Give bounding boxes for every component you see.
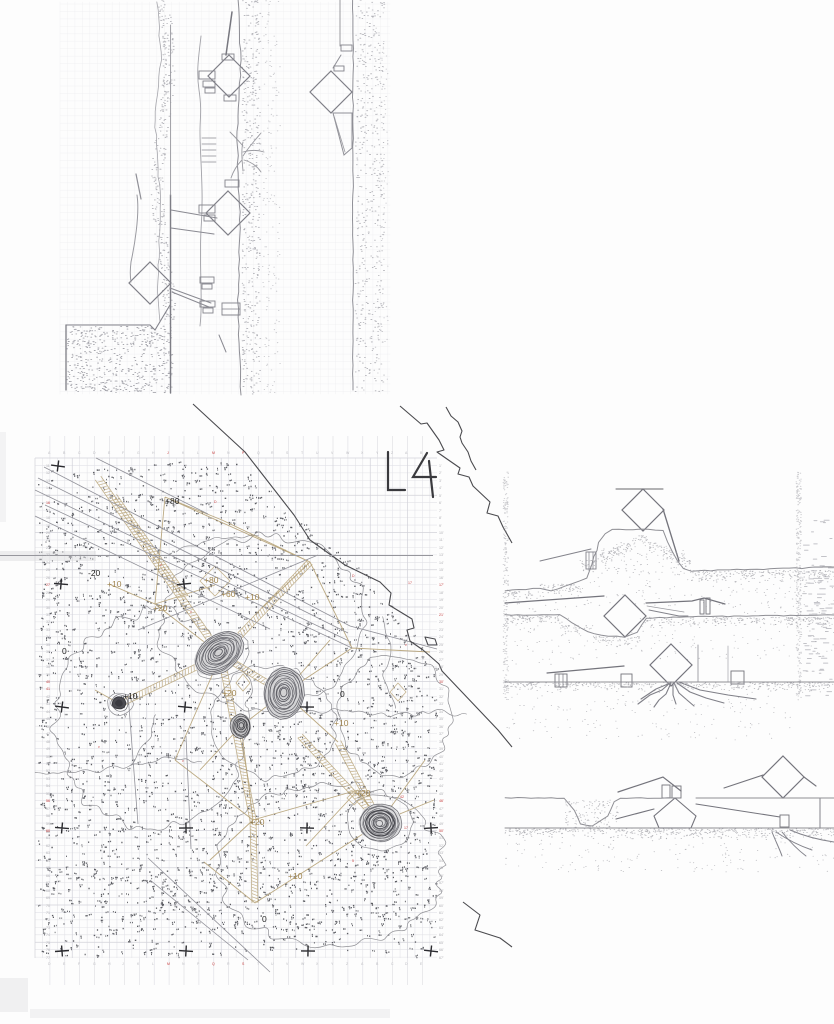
svg-text:v: v	[160, 563, 162, 567]
svg-text:11: 11	[46, 464, 50, 468]
svg-text:22': 22'	[439, 620, 444, 624]
svg-text:0: 0	[340, 689, 345, 699]
svg-text:24: 24	[46, 561, 50, 565]
svg-text:30: 30	[46, 606, 50, 610]
svg-text:L: L	[152, 962, 154, 966]
svg-text:63': 63'	[439, 926, 444, 930]
svg-text:J: J	[167, 451, 169, 455]
svg-text:73: 73	[46, 926, 50, 930]
svg-text:19': 19'	[439, 598, 444, 602]
svg-text:Q: Q	[257, 451, 260, 455]
svg-text:+10: +10	[123, 691, 138, 701]
svg-text:47: 47	[46, 732, 50, 736]
svg-text:34: 34	[46, 635, 50, 639]
svg-text:+20: +20	[356, 788, 371, 798]
svg-text:40: 40	[46, 680, 50, 684]
svg-text:46: 46	[46, 725, 50, 729]
svg-text:37': 37'	[439, 732, 444, 736]
svg-text:41': 41'	[439, 762, 444, 766]
svg-text:17: 17	[408, 581, 412, 585]
svg-text:61': 61'	[439, 911, 444, 915]
svg-text:v: v	[98, 745, 100, 749]
svg-text:28': 28'	[439, 665, 444, 669]
svg-text:M: M	[167, 962, 170, 966]
svg-text:8': 8'	[439, 516, 442, 520]
svg-text:J: J	[122, 962, 124, 966]
svg-text:74: 74	[46, 933, 50, 937]
svg-text:61: 61	[46, 836, 50, 840]
svg-text:51': 51'	[439, 836, 444, 840]
svg-text:24': 24'	[439, 635, 444, 639]
svg-text:-20: -20	[88, 568, 101, 578]
svg-text:65: 65	[46, 866, 50, 870]
svg-text:43: 43	[46, 702, 50, 706]
svg-text:33': 33'	[439, 702, 444, 706]
svg-text:46': 46'	[439, 799, 444, 803]
svg-text:6': 6'	[439, 501, 442, 505]
svg-text:20: 20	[46, 531, 50, 535]
svg-text:5: 5	[352, 859, 354, 863]
svg-text:63: 63	[46, 851, 50, 855]
svg-text:16': 16'	[439, 576, 444, 580]
svg-text:69: 69	[46, 896, 50, 900]
svg-text:13: 13	[46, 479, 50, 483]
svg-text:35': 35'	[439, 717, 444, 721]
svg-text:60': 60'	[439, 904, 444, 908]
svg-text:15': 15'	[439, 568, 444, 572]
svg-text:45: 45	[46, 717, 50, 721]
svg-text:57': 57'	[439, 881, 444, 885]
svg-text:70: 70	[46, 904, 50, 908]
svg-text:55: 55	[46, 792, 50, 796]
svg-text:29': 29'	[439, 673, 444, 677]
svg-text:12': 12'	[439, 546, 444, 550]
svg-text:36': 36'	[439, 725, 444, 729]
svg-text:F: F	[78, 962, 80, 966]
svg-text:0: 0	[262, 914, 267, 924]
svg-text:71: 71	[46, 911, 50, 915]
svg-text:29: 29	[46, 598, 50, 602]
svg-text:18': 18'	[439, 591, 444, 595]
svg-text:77: 77	[46, 956, 50, 960]
svg-text:17: 17	[404, 826, 408, 830]
svg-text:68: 68	[46, 889, 50, 893]
svg-text:28: 28	[46, 591, 50, 595]
svg-text:+80: +80	[204, 575, 219, 585]
svg-text:22: 22	[46, 546, 50, 550]
svg-text:58': 58'	[439, 889, 444, 893]
svg-text:72: 72	[46, 918, 50, 922]
svg-text:56': 56'	[439, 874, 444, 878]
svg-text:32: 32	[46, 620, 50, 624]
svg-text:4': 4'	[439, 486, 442, 490]
svg-text:76: 76	[46, 948, 50, 952]
svg-text:+20: +20	[153, 603, 168, 613]
svg-text:31': 31'	[439, 687, 444, 691]
svg-text:21: 21	[46, 538, 50, 542]
svg-text:30': 30'	[439, 680, 444, 684]
svg-text:64: 64	[46, 859, 50, 863]
svg-text:42: 42	[46, 695, 50, 699]
svg-text:7': 7'	[439, 509, 442, 513]
svg-text:41: 41	[46, 687, 50, 691]
svg-text:75: 75	[46, 941, 50, 945]
svg-text:v: v	[190, 610, 192, 614]
svg-text:F: F	[122, 451, 124, 455]
svg-text:+80: +80	[165, 496, 180, 506]
svg-text:56: 56	[46, 799, 50, 803]
svg-text:+10: +10	[288, 871, 303, 881]
svg-text:38: 38	[46, 665, 50, 669]
svg-text:48: 48	[46, 740, 50, 744]
svg-text:35: 35	[46, 643, 50, 647]
svg-text:13': 13'	[439, 553, 444, 557]
svg-text:51: 51	[46, 762, 50, 766]
svg-text:25': 25'	[439, 643, 444, 647]
svg-text:M: M	[212, 451, 215, 455]
svg-text:11': 11'	[439, 538, 444, 542]
svg-text:+60: +60	[221, 589, 236, 599]
svg-text:49': 49'	[439, 822, 444, 826]
svg-text:G: G	[137, 451, 140, 455]
svg-text:49: 49	[46, 747, 50, 751]
svg-text:10': 10'	[439, 531, 444, 535]
svg-text:67': 67'	[439, 956, 444, 960]
svg-text:3': 3'	[439, 479, 442, 483]
svg-text:52': 52'	[439, 844, 444, 848]
svg-text:42: 42	[400, 795, 404, 799]
svg-text:20': 20'	[439, 606, 444, 610]
svg-text:1': 1'	[439, 464, 442, 468]
svg-text:26: 26	[46, 576, 50, 580]
svg-text:33: 33	[46, 628, 50, 632]
svg-text:43': 43'	[439, 777, 444, 781]
svg-text:18: 18	[46, 516, 50, 520]
svg-text:37: 37	[46, 658, 50, 662]
svg-text:25: 25	[46, 568, 50, 572]
svg-text:31: 31	[46, 613, 50, 617]
svg-text:17': 17'	[439, 583, 444, 587]
svg-text:Q: Q	[212, 962, 215, 966]
svg-text:27': 27'	[439, 658, 444, 662]
svg-text:65': 65'	[439, 941, 444, 945]
svg-text:39: 39	[46, 673, 50, 677]
svg-text:+20: +20	[250, 817, 265, 827]
svg-text:55': 55'	[439, 866, 444, 870]
svg-text:45': 45'	[439, 792, 444, 796]
svg-text:+10: +10	[334, 718, 349, 728]
svg-text:62': 62'	[439, 918, 444, 922]
svg-text:52: 52	[46, 769, 50, 773]
svg-text:66: 66	[46, 874, 50, 878]
svg-text:17: 17	[46, 509, 50, 513]
svg-text:12: 12	[46, 471, 50, 475]
svg-text:27: 27	[46, 583, 50, 587]
svg-text:47': 47'	[439, 807, 444, 811]
svg-text:67: 67	[46, 881, 50, 885]
svg-text:15: 15	[46, 494, 50, 498]
svg-text:50': 50'	[439, 829, 444, 833]
svg-text:+10: +10	[245, 592, 260, 602]
svg-text:38': 38'	[439, 740, 444, 744]
svg-text:5': 5'	[439, 494, 442, 498]
svg-text:50: 50	[46, 755, 50, 759]
svg-text:48': 48'	[439, 814, 444, 818]
svg-text:39': 39'	[439, 747, 444, 751]
svg-text:G: G	[93, 962, 96, 966]
svg-text:v: v	[182, 759, 184, 763]
svg-text:34': 34'	[439, 710, 444, 714]
svg-text:32': 32'	[439, 695, 444, 699]
svg-text:+10: +10	[107, 579, 122, 589]
svg-text:+20: +20	[222, 688, 237, 698]
svg-text:v: v	[405, 643, 407, 647]
svg-text:0: 0	[62, 646, 67, 656]
svg-text:59: 59	[46, 822, 50, 826]
svg-text:64': 64'	[439, 933, 444, 937]
svg-text:14': 14'	[439, 561, 444, 565]
svg-text:21': 21'	[439, 613, 444, 617]
svg-text:54: 54	[46, 784, 50, 788]
svg-text:44': 44'	[439, 784, 444, 788]
svg-text:58: 58	[46, 814, 50, 818]
svg-text:62: 62	[46, 844, 50, 848]
svg-text:L: L	[197, 451, 199, 455]
svg-text:59': 59'	[439, 896, 444, 900]
svg-text:2': 2'	[439, 471, 442, 475]
svg-text:53': 53'	[439, 851, 444, 855]
svg-text:60: 60	[46, 829, 50, 833]
svg-text:53: 53	[46, 777, 50, 781]
svg-text:54': 54'	[439, 859, 444, 863]
svg-text:66': 66'	[439, 948, 444, 952]
svg-text:40': 40'	[439, 755, 444, 759]
svg-text:23: 23	[46, 553, 50, 557]
svg-text:23': 23'	[439, 628, 444, 632]
svg-text:42': 42'	[439, 769, 444, 773]
svg-text:44: 44	[46, 710, 50, 714]
svg-text:16: 16	[46, 501, 50, 505]
svg-text:36: 36	[46, 650, 50, 654]
svg-text:19: 19	[46, 524, 50, 528]
svg-text:9': 9'	[439, 524, 442, 528]
svg-text:26': 26'	[439, 650, 444, 654]
svg-text:14: 14	[46, 486, 50, 490]
svg-text:57: 57	[46, 807, 50, 811]
